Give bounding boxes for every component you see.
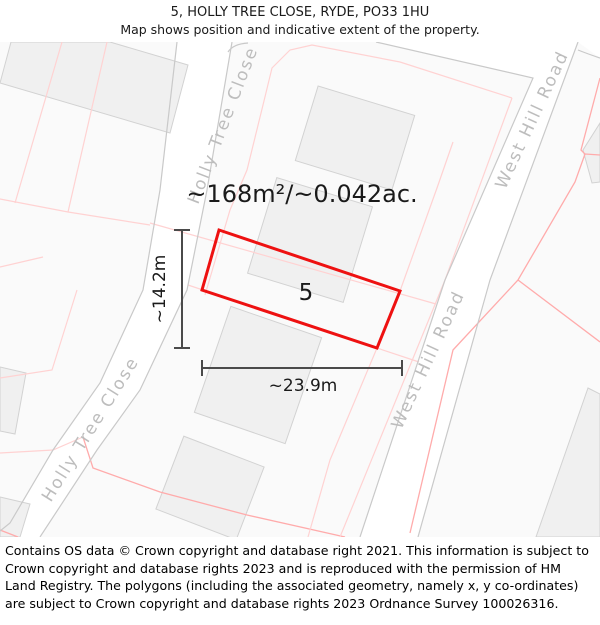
copyright-notice: Contains OS data © Crown copyright and d… — [0, 537, 600, 612]
dimension-height-label: ~14.2m — [150, 255, 170, 324]
area-label: ~168m²/~0.042ac. — [186, 180, 417, 208]
page-subtitle: Map shows position and indicative extent… — [0, 21, 600, 38]
dimension-width-label: ~23.9m — [269, 376, 338, 396]
page-title: 5, HOLLY TREE CLOSE, RYDE, PO33 1HU — [0, 4, 600, 21]
page: 5, HOLLY TREE CLOSE, RYDE, PO33 1HU Map … — [0, 0, 600, 625]
map-header: 5, HOLLY TREE CLOSE, RYDE, PO33 1HU Map … — [0, 0, 600, 42]
map-svg: Holly Tree Close Holly Tree Close West H… — [0, 42, 600, 537]
map-canvas: Holly Tree Close Holly Tree Close West H… — [0, 42, 600, 537]
plot-number-label: 5 — [299, 280, 314, 306]
